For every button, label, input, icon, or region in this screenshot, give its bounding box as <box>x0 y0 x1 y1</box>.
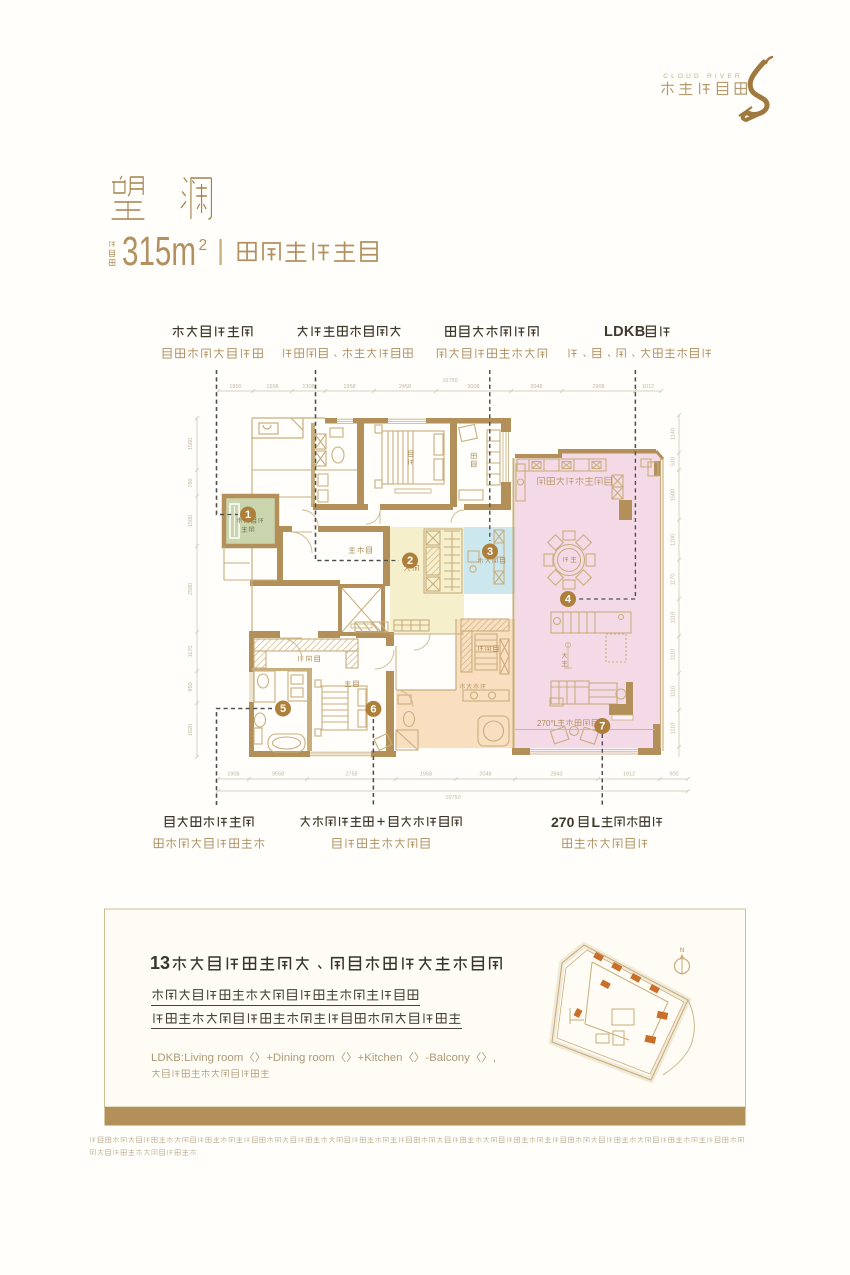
svg-text:1958: 1958 <box>343 384 355 390</box>
svg-text:1308: 1308 <box>302 384 314 390</box>
svg-text:2: 2 <box>407 555 413 567</box>
svg-text:2943: 2943 <box>550 772 562 778</box>
svg-text:2: 2 <box>199 237 208 254</box>
svg-text:1558: 1558 <box>266 384 278 390</box>
svg-text:1908: 1908 <box>227 772 239 778</box>
svg-text:2048: 2048 <box>479 772 491 778</box>
svg-text:270°L: 270°L <box>537 719 559 728</box>
svg-text:LDKB: LDKB <box>604 324 645 340</box>
svg-text:1012: 1012 <box>642 384 654 390</box>
svg-text:1958: 1958 <box>420 772 432 778</box>
svg-text:1110: 1110 <box>671 686 677 697</box>
svg-text:3558: 3558 <box>272 772 284 778</box>
svg-text:CLOUD RIVER: CLOUD RIVER <box>663 73 743 80</box>
svg-text:1850: 1850 <box>229 384 241 390</box>
svg-text:16750: 16750 <box>442 378 457 384</box>
svg-text:2908: 2908 <box>592 384 604 390</box>
svg-text:2580: 2580 <box>188 583 194 595</box>
svg-text:1912: 1912 <box>623 772 635 778</box>
svg-text:1140: 1140 <box>671 428 677 440</box>
svg-text:1500: 1500 <box>188 515 194 527</box>
svg-text:2758: 2758 <box>345 772 357 778</box>
svg-text:2458: 2458 <box>399 384 411 390</box>
svg-text:2048: 2048 <box>530 384 542 390</box>
svg-text:3: 3 <box>487 546 493 558</box>
svg-text:1170: 1170 <box>671 574 677 586</box>
svg-text:960: 960 <box>188 682 194 691</box>
svg-text:510: 510 <box>671 457 677 466</box>
svg-text:1110: 1110 <box>671 649 677 660</box>
svg-text:1: 1 <box>245 509 251 521</box>
svg-text:13: 13 <box>150 953 170 973</box>
svg-text:4: 4 <box>565 594 572 606</box>
svg-text:1200: 1200 <box>671 534 677 546</box>
svg-text:1170: 1170 <box>188 646 194 658</box>
svg-text:780: 780 <box>188 478 194 487</box>
svg-text:5: 5 <box>280 703 286 715</box>
svg-text:1110: 1110 <box>671 723 677 734</box>
svg-text:900: 900 <box>669 772 678 778</box>
svg-text:N: N <box>680 948 684 954</box>
svg-text:1560: 1560 <box>188 438 194 450</box>
svg-text:7: 7 <box>599 721 605 733</box>
svg-text:1110: 1110 <box>671 612 677 623</box>
svg-text:6: 6 <box>370 704 376 716</box>
svg-text:16750: 16750 <box>445 795 460 801</box>
svg-text:L: L <box>592 814 601 830</box>
svg-text:1500: 1500 <box>671 489 677 501</box>
svg-text:1620: 1620 <box>188 724 194 736</box>
svg-text:LDKB:Living room〈〉+Dining room: LDKB:Living room〈〉+Dining room〈〉+Kitchen… <box>151 1052 496 1064</box>
svg-text:315m: 315m <box>122 228 196 274</box>
svg-text:3008: 3008 <box>467 384 479 390</box>
svg-text:270: 270 <box>551 814 575 830</box>
